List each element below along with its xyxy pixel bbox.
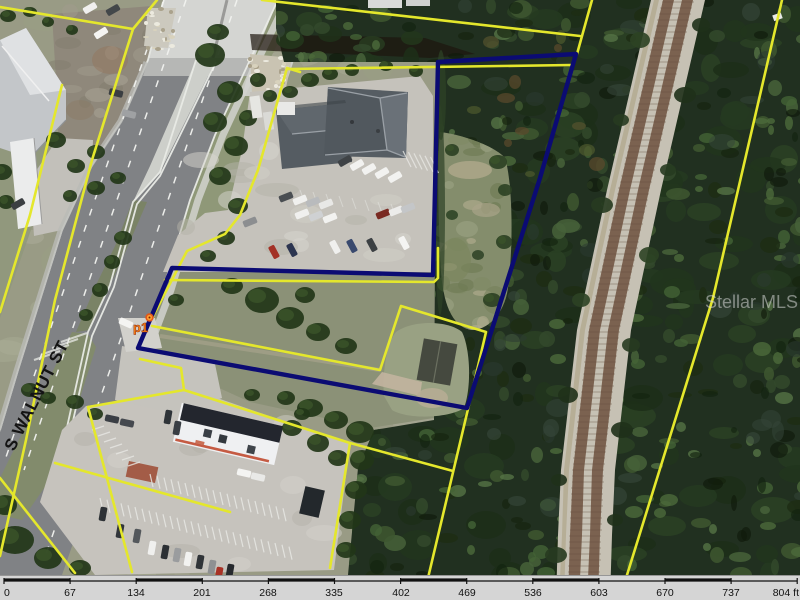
- svg-text:536: 536: [524, 587, 542, 599]
- svg-text:402: 402: [392, 587, 410, 599]
- svg-text:603: 603: [590, 587, 608, 599]
- svg-text:0: 0: [4, 587, 10, 599]
- svg-text:134: 134: [127, 587, 145, 599]
- svg-text:Stellar MLS: Stellar MLS: [705, 292, 798, 312]
- svg-text:670: 670: [656, 587, 674, 599]
- svg-text:201: 201: [193, 587, 211, 599]
- svg-text:804 ft: 804 ft: [773, 587, 799, 599]
- svg-text:67: 67: [64, 587, 76, 599]
- svg-text:737: 737: [722, 587, 740, 599]
- svg-text:469: 469: [458, 587, 476, 599]
- svg-text:268: 268: [259, 587, 277, 599]
- svg-text:335: 335: [325, 587, 343, 599]
- svg-text:p1: p1: [133, 320, 148, 335]
